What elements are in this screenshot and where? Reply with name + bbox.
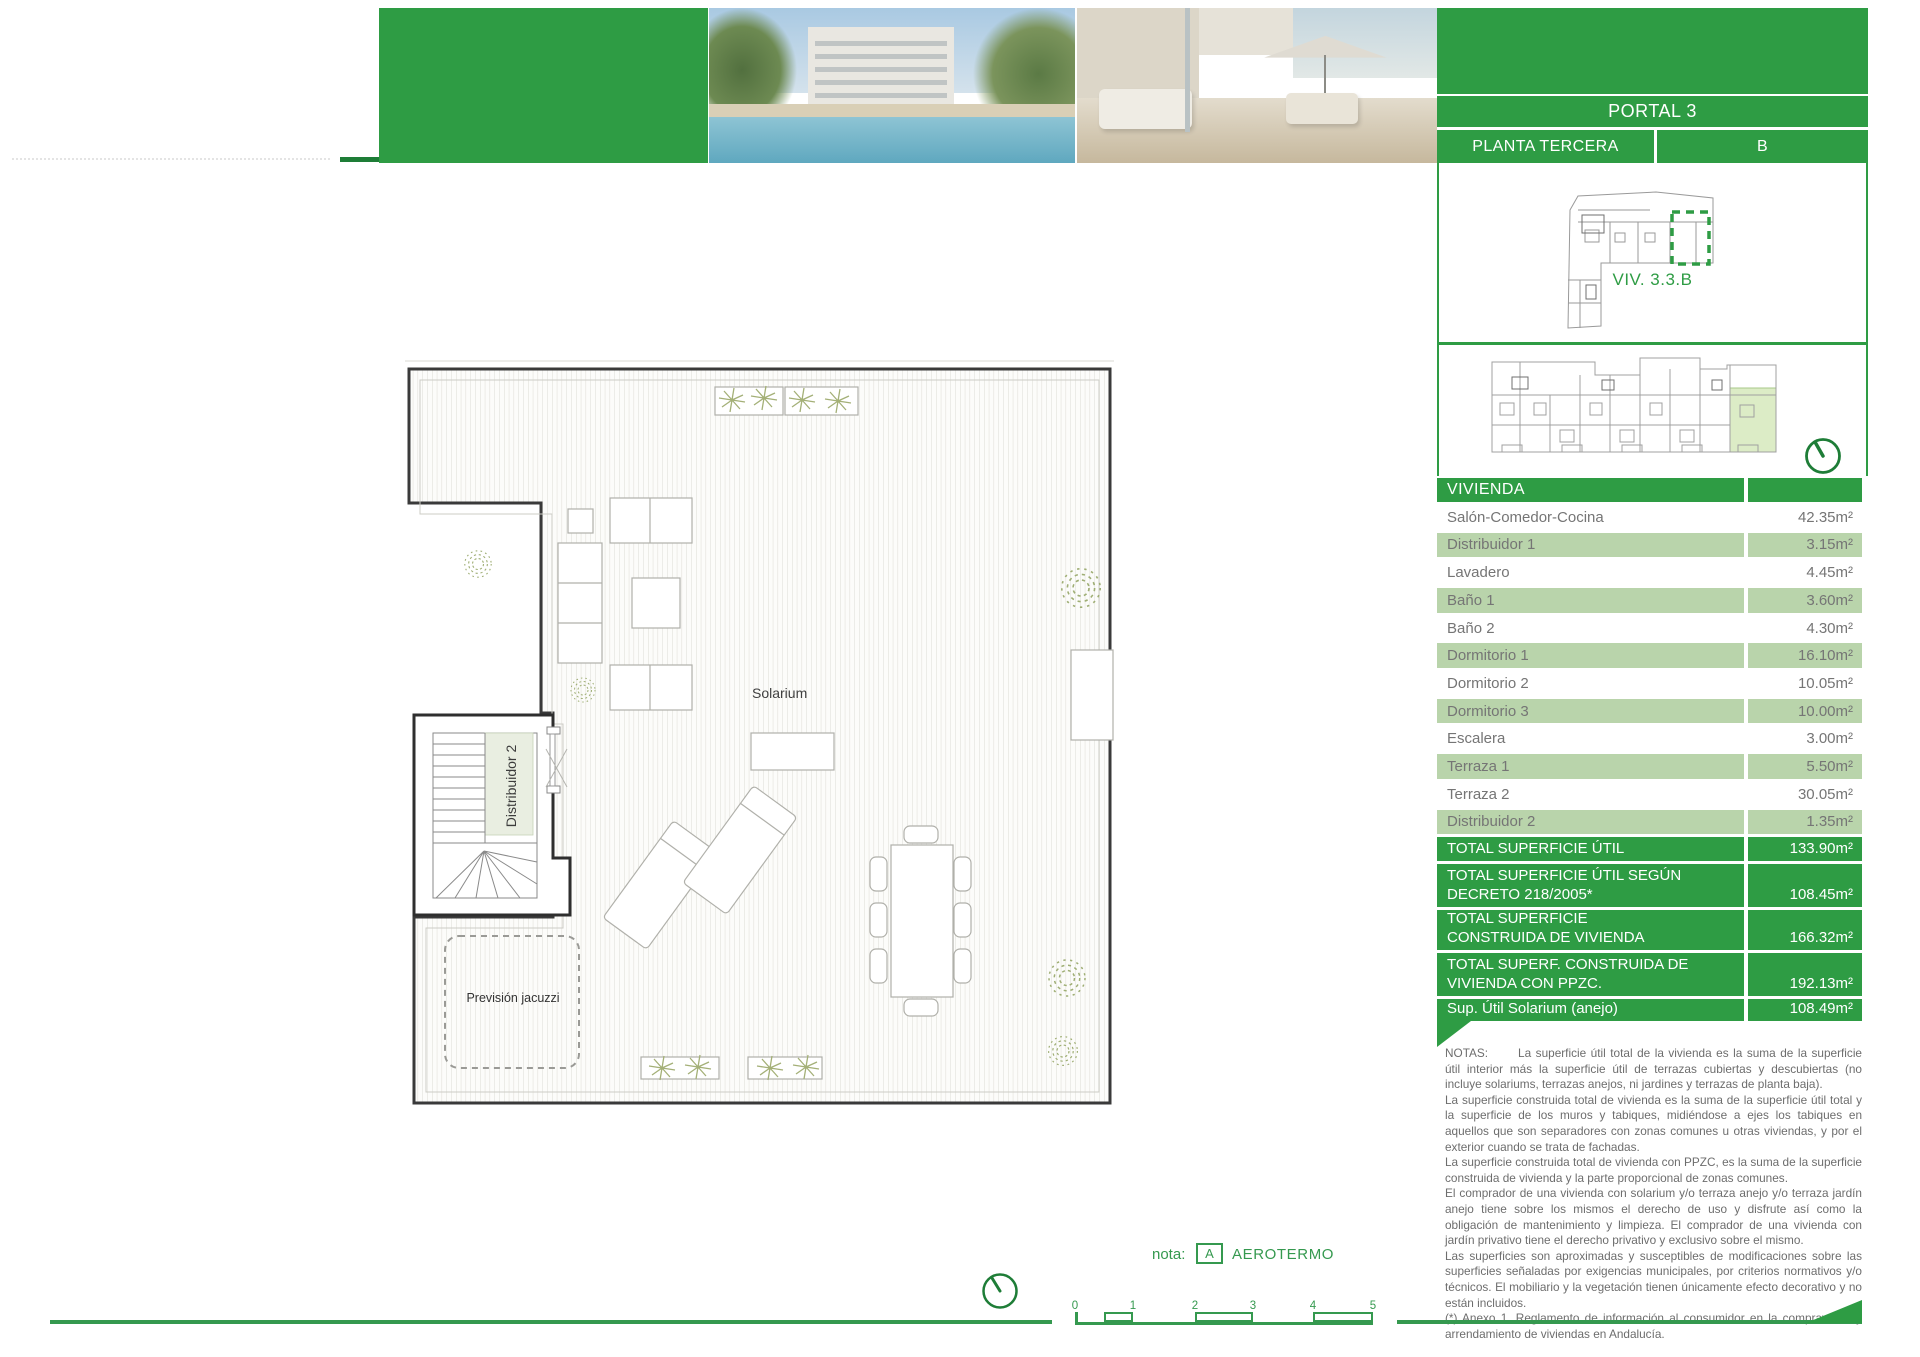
dining-table (891, 845, 953, 997)
room-label: Baño 1 (1437, 588, 1744, 613)
room-label: Terraza 2 (1437, 782, 1744, 807)
unit-letter: B (1657, 130, 1868, 163)
table-row: Escalera 3.00m² (1437, 727, 1862, 752)
scale-tick-number: 0 (1072, 1300, 1078, 1312)
room-area: 3.00m² (1748, 727, 1862, 752)
table-row: Terraza 1 5.50m² (1437, 754, 1862, 779)
total-row: TOTAL SUPERFICIE CONSTRUIDA DE VIVIENDA … (1437, 910, 1862, 950)
double-lounger (610, 665, 692, 710)
photo-lounger (1286, 93, 1358, 124)
room-area: 3.15m² (1748, 533, 1862, 558)
notes-paragraph: El comprador de una vivienda con solariu… (1445, 1186, 1862, 1248)
solarium-floorplan: Distribuidor 2 Solarium Previsión jacuzz… (395, 350, 1125, 1115)
unit-highlight-fill (1730, 388, 1776, 452)
chair (870, 949, 887, 983)
scale-segment (1195, 1312, 1253, 1322)
room-label: Distribuidor 2 (1437, 810, 1744, 835)
planta-title: PLANTA TERCERA (1437, 130, 1654, 163)
room-area: 3.60m² (1748, 588, 1862, 613)
notes-paragraph: Las superficies son aproximadas y suscep… (1445, 1249, 1862, 1311)
table-row: Distribuidor 2 1.35m² (1437, 810, 1862, 835)
scale-baseline (1075, 1322, 1373, 1325)
room-area: 1.35m² (1748, 810, 1862, 835)
siteplan-drawing (1510, 185, 1725, 335)
room-area: 16.10m² (1748, 643, 1862, 668)
notes-paragraph: La superficie construida total de vivien… (1445, 1155, 1862, 1186)
planter-box (785, 387, 858, 415)
total-row: TOTAL SUPERFICIE ÚTIL 133.90m² (1437, 837, 1862, 861)
stair-block: Distribuidor 2 (414, 715, 570, 915)
table-row: Salón-Comedor-Cocina 42.35m² (1437, 505, 1862, 530)
side-table (568, 509, 593, 533)
total-row: TOTAL SUPERF. CONSTRUIDA DE VIVIENDA CON… (1437, 953, 1862, 996)
brand-green-block (379, 8, 708, 163)
double-lounger (610, 498, 692, 543)
total-label: TOTAL SUPERFICIE CONSTRUIDA DE VIVIENDA (1437, 910, 1744, 950)
chair (870, 903, 887, 937)
table-title: VIVIENDA (1437, 478, 1744, 502)
notes-block: NOTAS:La superficie útil total de la viv… (1445, 1046, 1862, 1342)
total-label: TOTAL SUPERF. CONSTRUIDA DE VIVIENDA CON… (1437, 953, 1744, 996)
scale-tick (1075, 1312, 1078, 1323)
total-area: 166.32m² (1748, 910, 1862, 950)
room-label: Dormitorio 3 (1437, 699, 1744, 724)
portal-title: PORTAL 3 (1437, 96, 1868, 127)
room-label: Escalera (1437, 727, 1744, 752)
planter-box (715, 387, 783, 415)
room-area: 10.00m² (1748, 699, 1862, 724)
table-row: Baño 1 3.60m² (1437, 588, 1862, 613)
room-area: 4.30m² (1748, 616, 1862, 641)
notes-paragraphs: La superficie construida total de vivien… (1445, 1093, 1862, 1343)
table-row: Dormitorio 3 10.00m² (1437, 699, 1862, 724)
table-row: Baño 2 4.30m² (1437, 616, 1862, 641)
room-label: Terraza 1 (1437, 754, 1744, 779)
jacuzzi-label: Previsión jacuzzi (466, 991, 559, 1005)
notes-first-paragraph: NOTAS:La superficie útil total de la viv… (1445, 1046, 1862, 1093)
notes-label: NOTAS: (1445, 1046, 1488, 1060)
total-label: TOTAL SUPERFICIE ÚTIL SEGÚN DECRETO 218/… (1437, 864, 1744, 907)
floor-overview-drawing (1490, 355, 1780, 455)
total-label: Sup. Útil Solarium (anejo) (1437, 999, 1744, 1021)
chair (870, 857, 887, 891)
photo-pool-water (709, 117, 1075, 164)
bench-row (558, 543, 602, 663)
total-area: 133.90m² (1748, 837, 1862, 861)
chair (954, 903, 971, 937)
total-label: TOTAL SUPERFICIE ÚTIL (1437, 837, 1744, 861)
nota-label: nota: (1152, 1246, 1185, 1263)
total-area: 108.45m² (1748, 864, 1862, 907)
table-row: Dormitorio 1 16.10m² (1437, 643, 1862, 668)
faded-logo-line (12, 158, 330, 160)
room-area: 5.50m² (1748, 754, 1862, 779)
north-indicator-icon (979, 1270, 1021, 1312)
table-row: Dormitorio 2 10.05m² (1437, 671, 1862, 696)
scale-segment (1313, 1312, 1373, 1322)
room-label: Dormitorio 2 (1437, 671, 1744, 696)
table-row: Lavadero 4.45m² (1437, 560, 1862, 585)
room-area: 10.05m² (1748, 671, 1862, 696)
aerotermo-marker-box: A (1196, 1243, 1223, 1264)
brand-green-block-right (1437, 8, 1868, 94)
north-indicator-icon (1802, 435, 1844, 477)
scale-tick-number: 4 (1310, 1300, 1316, 1312)
photo-terrace (1077, 8, 1437, 163)
total-row: TOTAL SUPERFICIE ÚTIL SEGÚN DECRETO 218/… (1437, 864, 1862, 907)
room-area: 42.35m² (1748, 505, 1862, 530)
footer-rule (50, 1320, 1052, 1324)
solarium-label: Solarium (752, 685, 807, 701)
room-rows: Salón-Comedor-Cocina 42.35m² Distribuido… (1437, 505, 1862, 837)
room-label: Distribuidor 1 (1437, 533, 1744, 558)
table-row: Terraza 2 30.05m² (1437, 782, 1862, 807)
chair (904, 826, 938, 843)
wall-unit (1071, 650, 1113, 740)
table-header: VIVIENDA (1437, 478, 1862, 502)
low-table (632, 578, 680, 628)
chair (904, 999, 938, 1016)
scale-bar: 012345 (1075, 1300, 1373, 1327)
total-area: 192.13m² (1748, 953, 1862, 996)
room-label: Baño 2 (1437, 616, 1744, 641)
scale-tick-number: 1 (1130, 1300, 1136, 1312)
notes-intro: La superficie útil total de la vivienda … (1445, 1046, 1862, 1091)
table (751, 733, 834, 770)
room-label: Salón-Comedor-Cocina (1437, 505, 1744, 530)
green-dash (340, 157, 380, 162)
total-area: 108.49m² (1748, 999, 1862, 1021)
footer-corner-triangle (1806, 1300, 1862, 1323)
room-label: Dormitorio 1 (1437, 643, 1744, 668)
room-label: Lavadero (1437, 560, 1744, 585)
scale-tick-number: 3 (1250, 1300, 1256, 1312)
photo-glass-door (1185, 8, 1190, 132)
scale-segment (1104, 1312, 1133, 1322)
unit-highlight-dashed-box (1672, 212, 1709, 264)
room-area: 4.45m² (1748, 560, 1862, 585)
photo-pool-garden (709, 8, 1075, 163)
room-area: 30.05m² (1748, 782, 1862, 807)
table-corner-wedge (1437, 1021, 1471, 1047)
total-row: Sup. Útil Solarium (anejo) 108.49m² (1437, 999, 1862, 1021)
chair (954, 949, 971, 983)
totals-rows: TOTAL SUPERFICIE ÚTIL 133.90m² TOTAL SUP… (1437, 837, 1862, 1021)
table-title-value-cell (1748, 478, 1862, 502)
floorplan-sheet: PORTAL 3 PLANTA TERCERA B VIV. 3.3.B (0, 0, 1920, 1357)
distribuidor-label: Distribuidor 2 (503, 745, 519, 828)
scale-tick-number: 5 (1370, 1300, 1376, 1312)
chair (954, 857, 971, 891)
notes-paragraph: La superficie construida total de vivien… (1445, 1093, 1862, 1155)
photo-building-windows (815, 33, 947, 101)
photo-sofa (1099, 89, 1193, 129)
unit-code-label: VIV. 3.3.B (1437, 270, 1868, 290)
notes-paragraph: (*) Anexo 1. Reglamento de información a… (1445, 1311, 1862, 1342)
footer-rule (1397, 1320, 1862, 1324)
aerotermo-label: AEROTERMO (1232, 1246, 1334, 1263)
table-row: Distribuidor 1 3.15m² (1437, 533, 1862, 558)
scale-tick-number: 2 (1192, 1300, 1198, 1312)
